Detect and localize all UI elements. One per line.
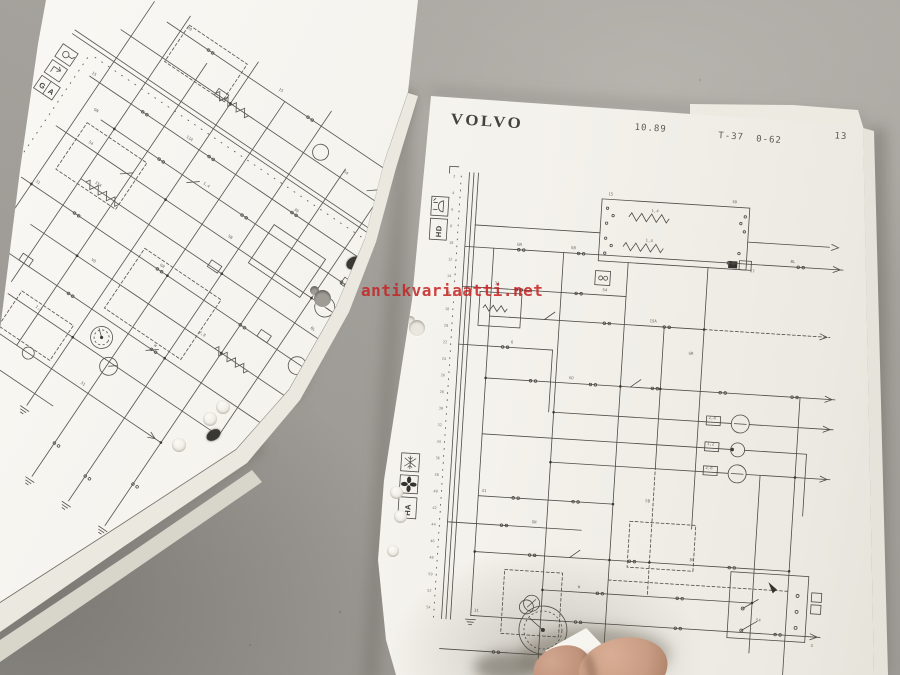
volvo-logo: VOLVO: [450, 110, 524, 133]
ruler-number: 24: [442, 357, 447, 361]
wire-label: 1,4: [645, 238, 653, 243]
wire-label: BL: [689, 557, 695, 562]
wire-label: 30: [732, 199, 738, 204]
wire-label: 15A: [649, 318, 657, 323]
ruler-number: 50: [428, 572, 433, 576]
right-embossed-hole-3: [387, 545, 399, 557]
wire-label: 15: [278, 87, 285, 94]
left-embossed-hole-3: [172, 438, 186, 452]
photo-scene: G A: [0, 0, 900, 675]
ruler-number: 44: [431, 522, 436, 526]
right-embossed-hole-1: [390, 486, 403, 499]
ruler-number: 12: [448, 257, 453, 261]
finger-shadow-left: [474, 652, 540, 675]
wire-label: 54: [756, 617, 762, 622]
right-page-printed-content: VOLVO 10.89 T-37 0-62 13 246810121416182…: [371, 91, 886, 675]
ruler-number: 10: [449, 241, 454, 245]
wire-label: 15: [91, 70, 98, 77]
left-punch-hole-keyhole: [314, 290, 331, 307]
ruler-number: 46: [430, 539, 435, 543]
wire-label: GR: [159, 262, 166, 269]
right-punch-hole-keyhole: [409, 320, 425, 336]
wire-label: GR: [688, 351, 694, 356]
ruler-number: 20: [444, 324, 449, 328]
right-horizontal-wires: [440, 246, 844, 672]
wire-label: BL: [790, 259, 796, 264]
wire-label: 1,4: [202, 180, 211, 189]
header-range: 0-62: [756, 134, 782, 146]
right-wiring-schematic: 2468101214161820222426283032343638404244…: [372, 150, 874, 675]
page-number: 13: [834, 131, 847, 142]
left-embossed-hole-2: [216, 400, 230, 414]
ruler-number: 2: [453, 174, 455, 178]
ruler-number: 48: [429, 556, 434, 560]
ruler-number: 6: [451, 208, 453, 212]
wire-label: 1,2: [707, 441, 715, 446]
header-ref: T-37: [718, 131, 744, 143]
left-component-boxes: [0, 8, 338, 421]
wire-label: BL: [310, 325, 317, 332]
wire-label: 31: [481, 488, 487, 493]
wire-label: VO: [569, 375, 575, 380]
ruler-number: 36: [435, 456, 440, 460]
right-component-boxes: [501, 514, 696, 646]
wire-label: W: [578, 584, 581, 589]
ruler-number: 30: [439, 406, 444, 410]
ruler-number: 14: [447, 274, 452, 278]
wire-label: 2,8: [198, 330, 207, 339]
ruler-number: 38: [434, 473, 439, 477]
wire-label: GN: [93, 107, 100, 114]
wire-label: 6: [511, 339, 514, 344]
ruler-number: 28: [440, 390, 445, 394]
wire-label: GN: [532, 519, 538, 524]
ruler-number: 34: [436, 440, 441, 444]
right-junction-dots: [471, 315, 805, 607]
ruler-number: 32: [437, 423, 442, 427]
wire-label: 67: [750, 268, 756, 273]
ruler-number: 42: [432, 506, 437, 510]
watermark-text: antikvariaatti.net: [361, 281, 543, 300]
left-page-code-box: G A: [34, 75, 61, 100]
wire-label: 30: [293, 207, 300, 214]
wire-label: GN: [517, 242, 523, 247]
right-embossed-hole-2: [394, 510, 407, 523]
wire-label: 31: [35, 178, 42, 185]
wire-label: 31: [474, 608, 480, 613]
ruler-number: 18: [445, 307, 450, 311]
wire-label: 30: [186, 25, 193, 32]
wire-label: SB: [227, 233, 234, 240]
wire-label: 1,4: [651, 208, 659, 213]
wire-label: 1,2: [35, 304, 44, 313]
ruler-number: 22: [443, 340, 448, 344]
right-vertical-wires: [467, 248, 818, 675]
ruler-number: 40: [433, 489, 438, 493]
wire-label: VO: [90, 257, 97, 264]
wire-label: 54: [602, 287, 608, 292]
wire-label: SB: [645, 498, 651, 503]
wire-label: 54: [343, 169, 350, 176]
snowflake-icon: [401, 453, 420, 472]
ruler-number: 52: [427, 589, 432, 593]
wire-label: 54: [88, 139, 95, 146]
wire-label: 31: [80, 380, 87, 387]
right-code-box-hd: HD: [429, 218, 447, 240]
right-bus-lines: [441, 172, 478, 619]
ruler-number: 4: [452, 191, 454, 195]
wire-label: W: [153, 343, 158, 349]
ruler-number: 26: [441, 373, 446, 377]
headlamp-icon: [431, 196, 449, 216]
ruler-number: 8: [450, 224, 452, 228]
margin-code-hd: HD: [434, 225, 444, 237]
left-embossed-hole-1: [203, 412, 217, 426]
left-margin-boxes: G A: [34, 44, 82, 100]
wire-label: 2,8: [705, 465, 713, 470]
left-gauge-components: [76, 322, 133, 379]
wire-label: 3: [810, 643, 813, 648]
wire-label: 15: [608, 191, 614, 196]
ruler-number: 54: [426, 605, 431, 609]
header-date: 10.89: [634, 123, 667, 135]
wire-label: SB: [571, 245, 577, 250]
wire-label: 2,8: [708, 415, 716, 420]
